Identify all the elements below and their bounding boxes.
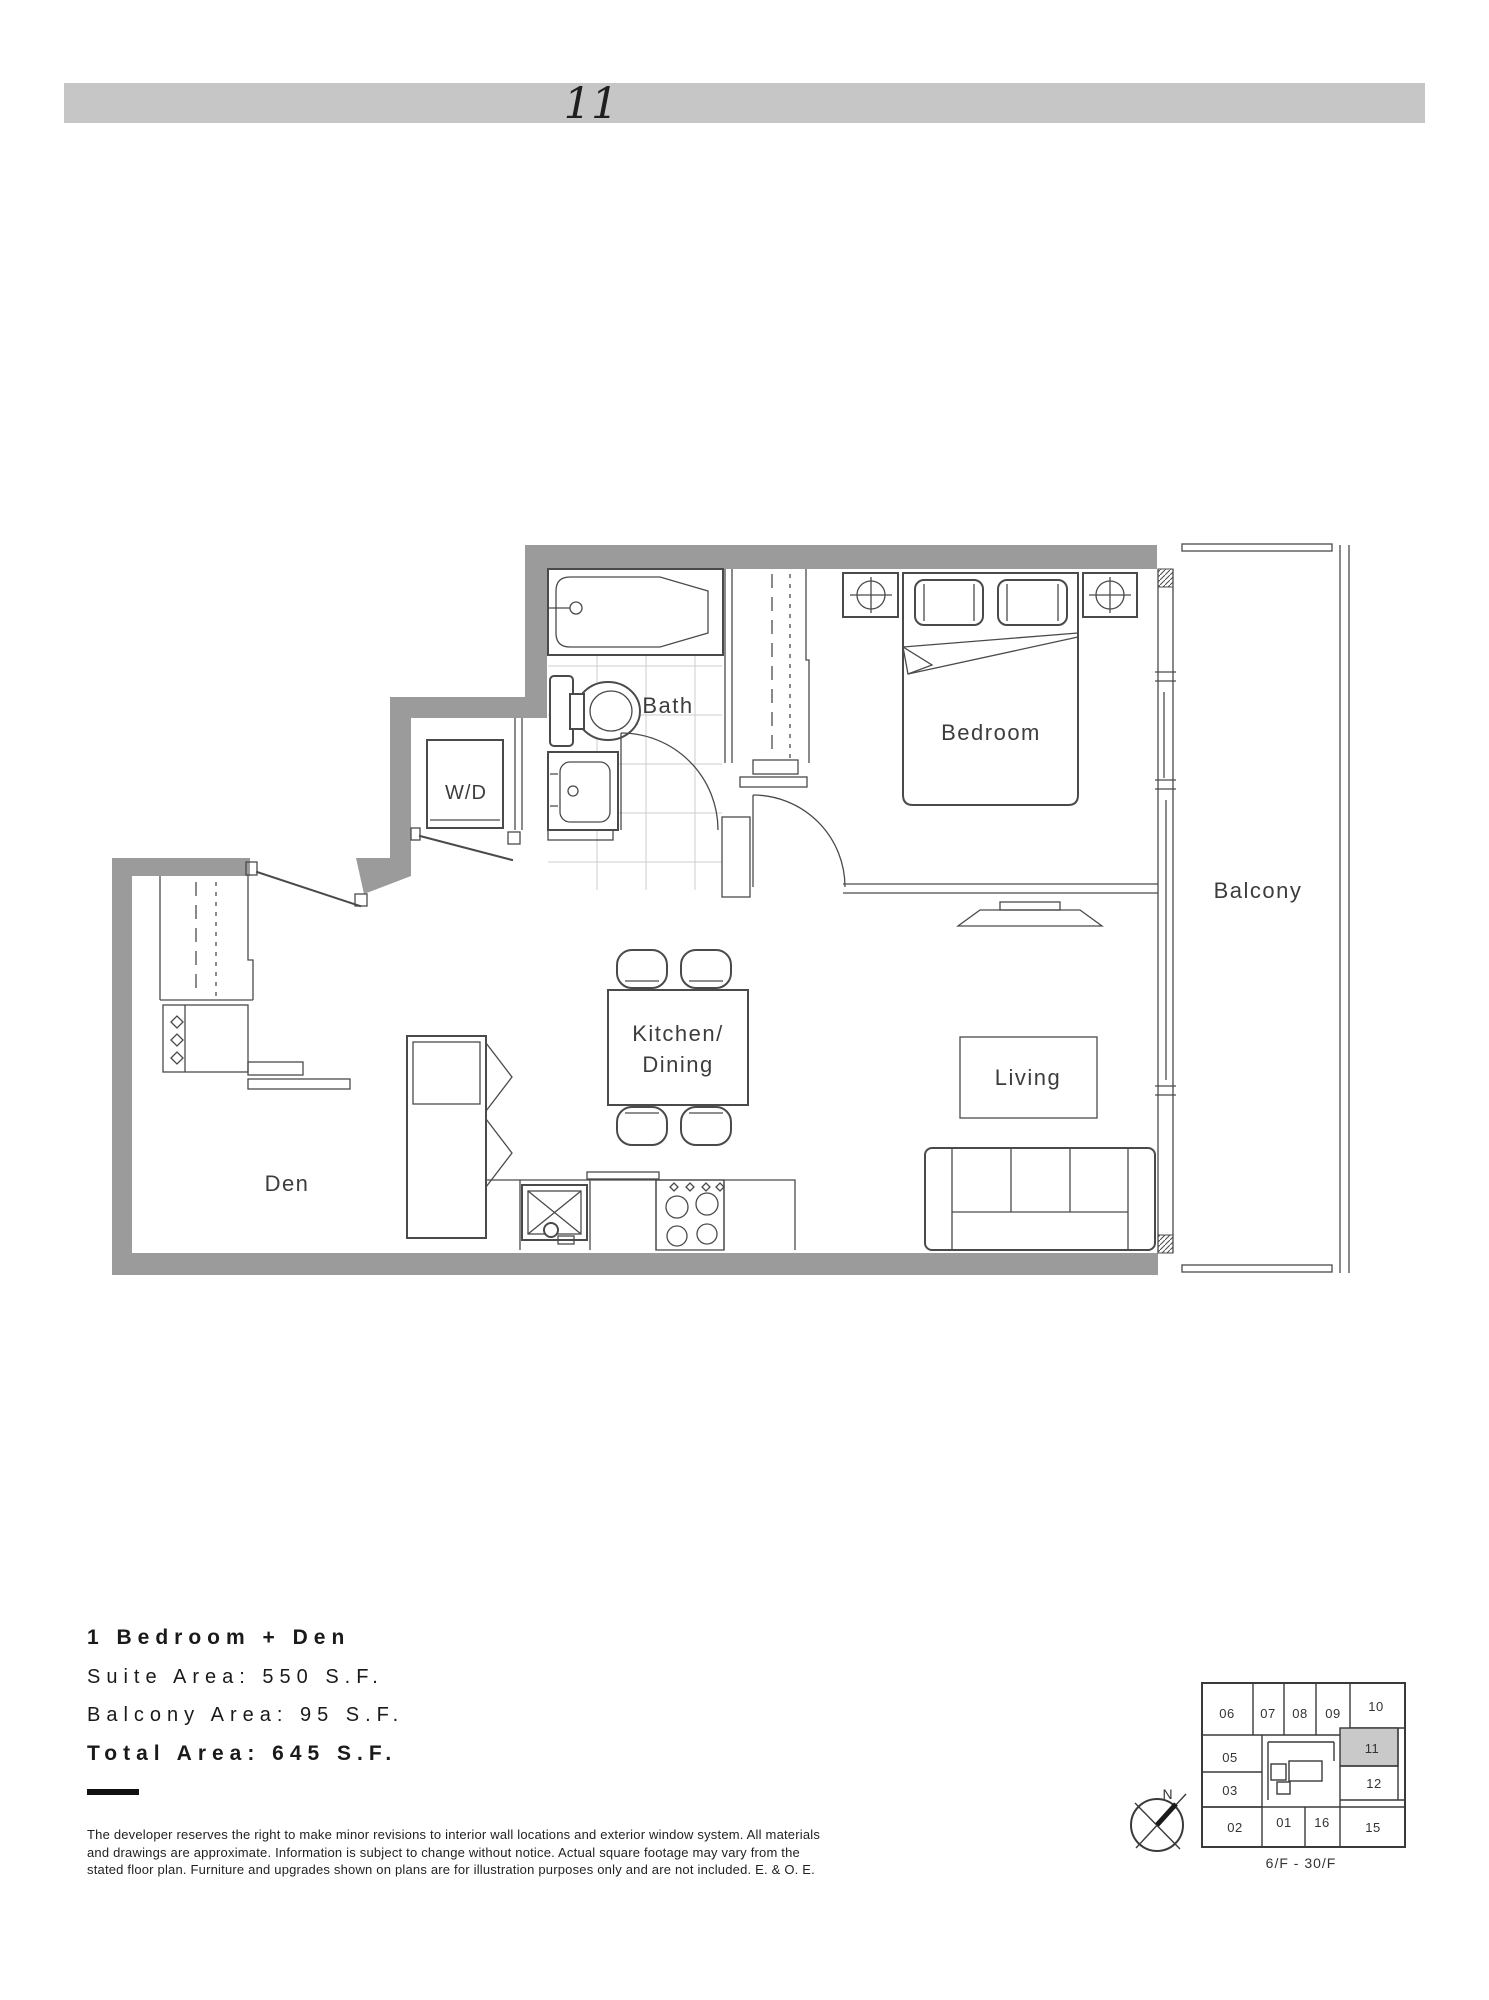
- sofa: [925, 1148, 1155, 1250]
- suite-info-block: 1 Bedroom + Den Suite Area: 550 S.F. Bal…: [87, 1626, 404, 1766]
- total-area: Total Area: 645 S.F.: [87, 1742, 404, 1766]
- refrigerator: [407, 1036, 512, 1238]
- balcony-outline: [1182, 544, 1349, 1273]
- toilet: [550, 676, 640, 746]
- nightstand-left: [843, 573, 898, 617]
- keyplan-unit-15: 15: [1365, 1820, 1380, 1835]
- room-label-living: Living: [995, 1065, 1061, 1090]
- bed: [903, 573, 1078, 805]
- keyplan-unit-05: 05: [1222, 1750, 1237, 1765]
- keyplan-unit-12: 12: [1366, 1776, 1381, 1791]
- disclaimer-line: stated floor plan. Furniture and upgrade…: [87, 1861, 987, 1879]
- stove: [656, 1180, 724, 1250]
- room-label-balcony: Balcony: [1214, 878, 1303, 903]
- window-wall: [1155, 569, 1176, 1253]
- keyplan-unit-16: 16: [1314, 1815, 1329, 1830]
- room-label-den: Den: [265, 1171, 310, 1196]
- keyplan-unit-07: 07: [1260, 1706, 1275, 1721]
- bathroom-vanity-sink: [548, 752, 618, 830]
- dining-table: [608, 950, 748, 1145]
- keyplan-unit-01: 01: [1276, 1815, 1291, 1830]
- compass-icon: N: [1131, 1786, 1186, 1851]
- divider-rule: [87, 1789, 139, 1795]
- kitchen-sink: [522, 1185, 587, 1244]
- entry-door: [246, 862, 367, 906]
- plan-type: 1 Bedroom + Den: [87, 1626, 404, 1650]
- key-plan: 06 07 08 09 10 05 11 03 12 02 01 16 15 6…: [1202, 1683, 1405, 1871]
- room-label-kitchen-line2: Dining: [642, 1052, 713, 1077]
- den-desk: [163, 1005, 350, 1089]
- tv-console: [958, 902, 1102, 926]
- den-closet: [160, 876, 253, 1000]
- bedroom-closet: [725, 569, 809, 787]
- floorplan-sheet: 11: [0, 0, 1489, 2000]
- compass-north-label: N: [1162, 1786, 1173, 1802]
- disclaimer-line: and drawings are approximate. Informatio…: [87, 1844, 987, 1862]
- bedroom-door: [722, 795, 1158, 897]
- balcony-area: Balcony Area: 95 S.F.: [87, 1704, 404, 1727]
- disclaimer-line: The developer reserves the right to make…: [87, 1826, 987, 1844]
- nightstand-right: [1083, 573, 1137, 617]
- keyplan-unit-08: 08: [1292, 1706, 1307, 1721]
- keyplan-unit-09: 09: [1325, 1706, 1340, 1721]
- room-label-kitchen-line1: Kitchen/: [632, 1021, 724, 1046]
- keyplan-unit-02: 02: [1227, 1820, 1242, 1835]
- suite-area: Suite Area: 550 S.F.: [87, 1666, 404, 1689]
- keyplan-unit-10: 10: [1368, 1699, 1383, 1714]
- room-label-wd: W/D: [445, 782, 487, 804]
- keyplan-unit-03: 03: [1222, 1783, 1237, 1798]
- keyplan-unit-11: 11: [1365, 1741, 1380, 1756]
- keyplan-floor-range: 6/F - 30/F: [1266, 1855, 1337, 1871]
- bathtub: [548, 569, 723, 655]
- keyplan-unit-06: 06: [1219, 1706, 1234, 1721]
- disclaimer: The developer reserves the right to make…: [87, 1826, 987, 1879]
- room-label-bedroom: Bedroom: [941, 720, 1041, 745]
- room-label-bath: Bath: [642, 693, 693, 718]
